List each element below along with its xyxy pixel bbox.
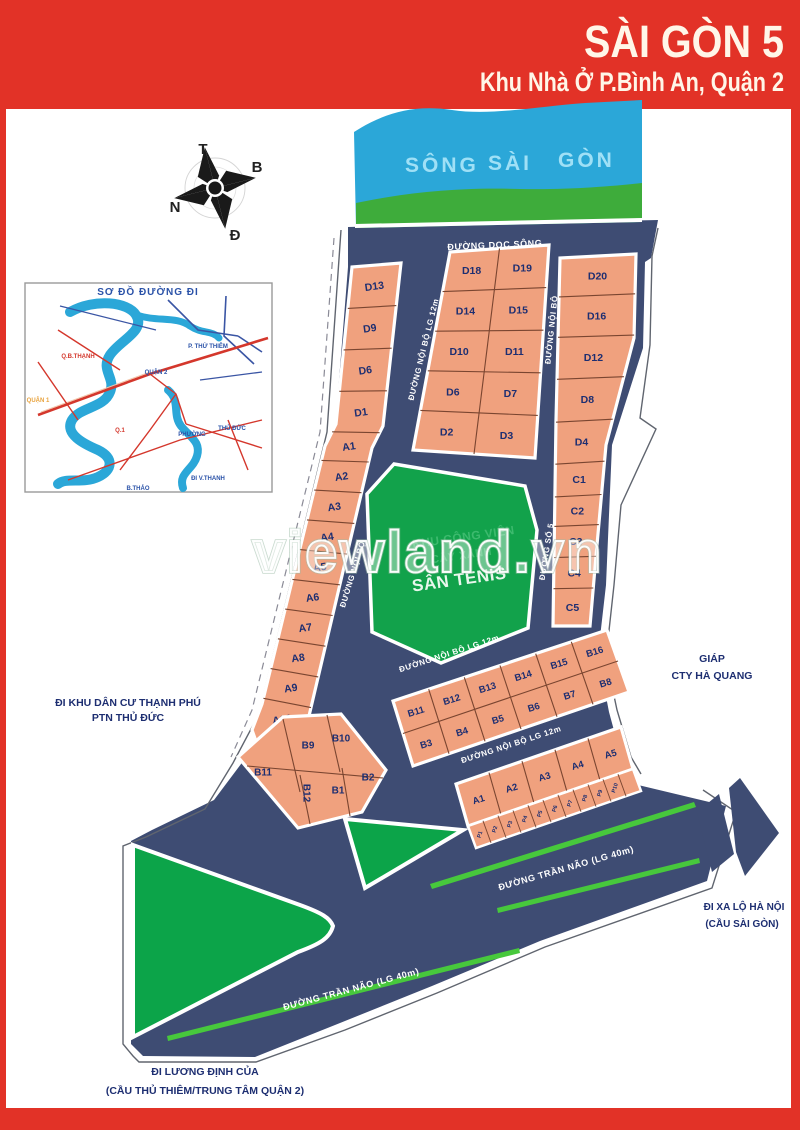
svg-text:(CẦU SÀI GÒN): (CẦU SÀI GÒN) [705,917,778,930]
svg-text:C2: C2 [571,505,585,517]
svg-text:D2: D2 [440,427,454,439]
svg-text:ĐI XA LỘ HÀ NỘI: ĐI XA LỘ HÀ NỘI [704,900,785,913]
svg-text:SÀI GÒN 5: SÀI GÒN 5 [584,16,784,67]
svg-text:D16: D16 [587,311,606,323]
svg-text:D8: D8 [581,394,595,406]
svg-text:Khu Nhà Ở P.Bình An, Quận 2: Khu Nhà Ở P.Bình An, Quận 2 [480,65,784,97]
svg-text:viewland.vn: viewland.vn [253,520,604,585]
svg-text:D14: D14 [456,306,475,318]
svg-text:ĐI LƯƠNG ĐỊNH CỦA: ĐI LƯƠNG ĐỊNH CỦA [151,1065,259,1078]
svg-text:CTY HÀ QUANG: CTY HÀ QUANG [672,669,753,682]
svg-text:D4: D4 [575,436,589,448]
svg-text:Đ: Đ [230,227,241,244]
svg-text:QUẬN 2: QUẬN 2 [145,369,168,376]
svg-text:B11: B11 [254,768,272,779]
svg-text:THỦ ĐỨC: THỦ ĐỨC [218,425,246,432]
svg-text:GIÁP: GIÁP [699,652,725,665]
svg-text:D6: D6 [358,364,373,378]
svg-text:Q.1: Q.1 [115,428,125,434]
svg-text:D15: D15 [509,304,528,316]
svg-text:QUẬN 1: QUẬN 1 [27,397,50,404]
svg-text:Q.B.THẠNH: Q.B.THẠNH [61,354,94,360]
svg-text:B2: B2 [362,773,375,784]
svg-text:(CẦU THỦ THIÊM/TRUNG TÂM QUẬN: (CẦU THỦ THIÊM/TRUNG TÂM QUẬN 2) [106,1084,304,1097]
svg-text:D11: D11 [505,346,524,358]
svg-text:ĐI V.THANH: ĐI V.THANH [191,476,225,482]
svg-text:D7: D7 [504,388,518,400]
svg-text:T: T [198,141,207,158]
svg-text:D1: D1 [354,406,369,420]
svg-text:B12: B12 [300,784,311,803]
svg-text:C1: C1 [572,474,586,486]
svg-text:A8: A8 [291,651,306,665]
svg-text:B9: B9 [302,741,315,752]
svg-text:C5: C5 [566,602,580,614]
svg-text:P. THỨ THIÊM: P. THỨ THIÊM [188,342,228,350]
svg-text:A2: A2 [334,470,349,484]
svg-text:D19: D19 [513,263,532,275]
svg-text:B10: B10 [332,734,351,745]
svg-text:SƠ ĐỒ ĐƯỜNG ĐI: SƠ ĐỒ ĐƯỜNG ĐI [97,285,199,298]
svg-text:A7: A7 [298,621,313,635]
svg-text:GÒN: GÒN [558,148,615,172]
svg-text:A3: A3 [327,500,342,514]
svg-text:A9: A9 [283,682,298,696]
svg-text:SÀI: SÀI [488,152,532,175]
svg-text:A6: A6 [305,591,320,605]
svg-text:D20: D20 [588,270,607,282]
svg-text:PTN THỦ ĐỨC: PTN THỦ ĐỨC [92,711,165,724]
svg-text:B1: B1 [332,786,345,797]
svg-text:D12: D12 [584,352,603,364]
svg-text:D3: D3 [500,430,514,442]
svg-text:D6: D6 [446,386,460,398]
svg-text:D9: D9 [362,322,377,336]
svg-text:ĐI KHU DÂN CƯ THẠNH PHÚ: ĐI KHU DÂN CƯ THẠNH PHÚ [55,696,201,709]
svg-text:D18: D18 [462,265,481,277]
svg-text:A1: A1 [342,440,357,454]
svg-text:N: N [170,199,181,216]
svg-text:SÔNG: SÔNG [405,153,479,177]
svg-text:B.THẢO: B.THẢO [127,485,150,492]
svg-text:PHƯỜNG: PHƯỜNG [178,430,206,438]
svg-text:B: B [252,159,263,176]
svg-text:D10: D10 [449,346,468,358]
